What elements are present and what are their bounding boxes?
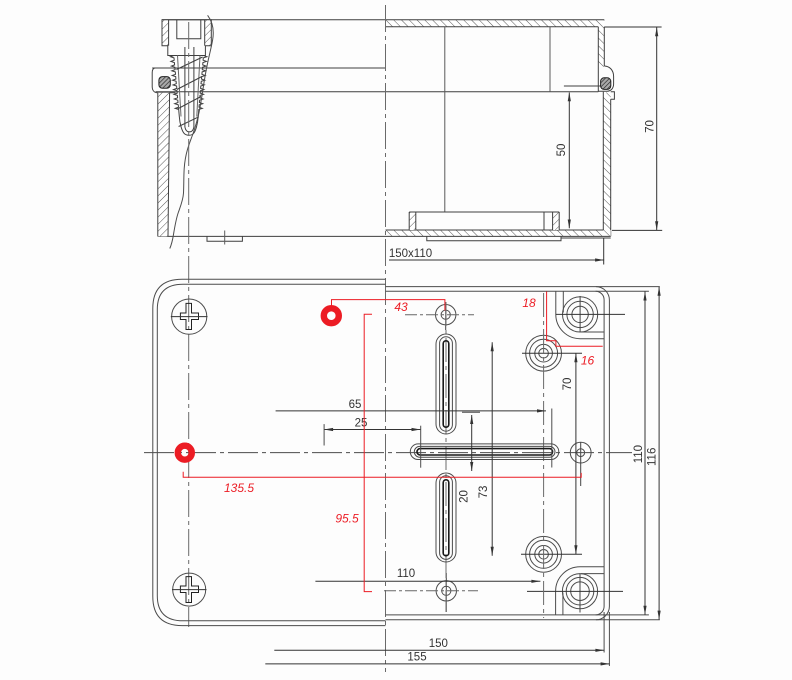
svg-text:110: 110 [397, 568, 415, 580]
svg-text:65: 65 [349, 399, 362, 411]
svg-text:95.5: 95.5 [335, 512, 359, 526]
svg-text:110: 110 [633, 445, 645, 463]
svg-text:18: 18 [522, 296, 536, 310]
svg-text:20: 20 [459, 490, 471, 503]
svg-text:116: 116 [646, 448, 658, 466]
svg-text:16: 16 [581, 354, 595, 368]
svg-text:150: 150 [429, 638, 448, 650]
svg-text:70: 70 [645, 120, 657, 133]
svg-text:155: 155 [407, 652, 426, 664]
svg-text:135.5: 135.5 [224, 481, 254, 495]
svg-text:150x110: 150x110 [389, 248, 432, 260]
svg-text:70: 70 [562, 378, 574, 391]
svg-text:50: 50 [556, 144, 568, 157]
svg-text:25: 25 [355, 417, 368, 429]
svg-text:73: 73 [478, 486, 490, 499]
svg-text:43: 43 [394, 300, 408, 314]
